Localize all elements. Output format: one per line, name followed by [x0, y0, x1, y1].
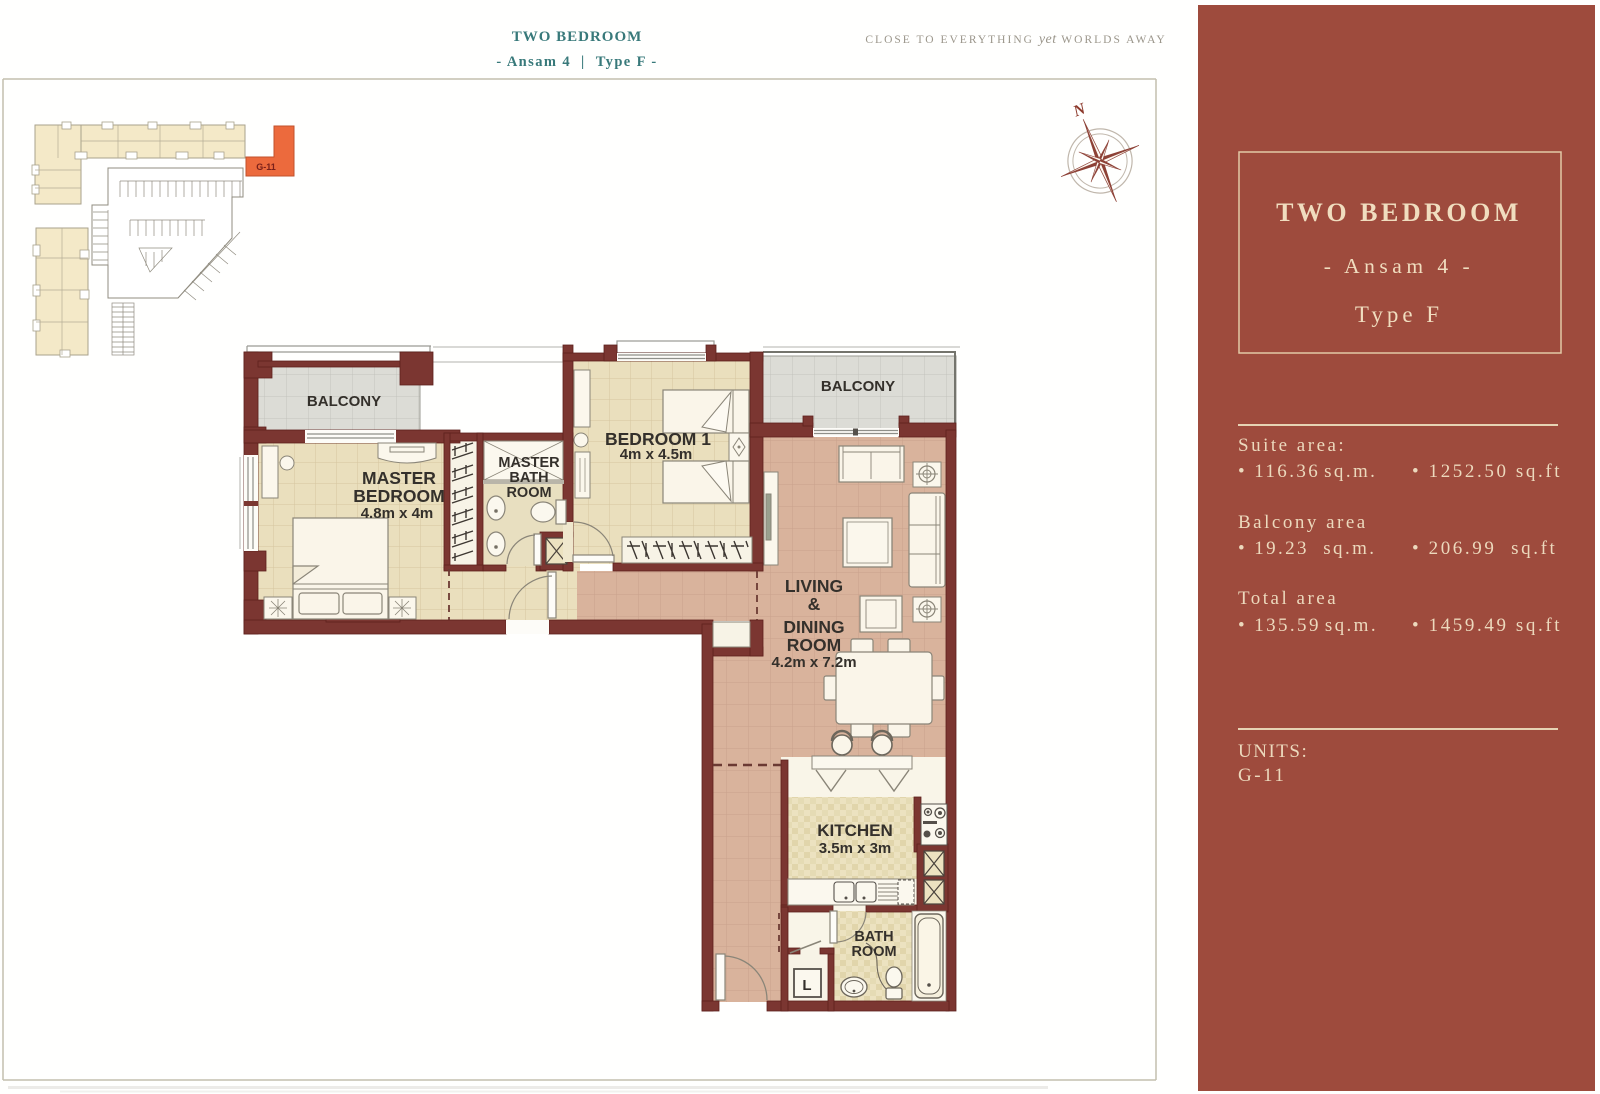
svg-text:• 1252.50 sq.ft: • 1252.50 sq.ft — [1412, 461, 1562, 482]
svg-text:Suite area:: Suite area: — [1238, 435, 1346, 456]
svg-text:- Ansam 4 -: - Ansam 4 - — [1324, 254, 1474, 278]
svg-text:3.5m x 3m: 3.5m x 3m — [819, 840, 892, 857]
svg-text:4m x 4.5m: 4m x 4.5m — [620, 446, 693, 463]
svg-text:L: L — [802, 977, 811, 994]
svg-text:G-11: G-11 — [256, 162, 276, 172]
svg-text:BEDROOM: BEDROOM — [353, 486, 444, 506]
svg-text:LIVING: LIVING — [785, 576, 843, 596]
svg-text:TWO BEDROOM: TWO BEDROOM — [512, 29, 643, 45]
svg-text:4.8m x 4m: 4.8m x 4m — [361, 505, 434, 522]
svg-text:Type F: Type F — [1355, 302, 1443, 327]
svg-text:MASTER: MASTER — [362, 468, 436, 488]
svg-text:ROOM: ROOM — [851, 944, 896, 960]
svg-text:&: & — [808, 594, 821, 614]
svg-text:• 19.23 sq.m.: • 19.23 sq.m. — [1238, 538, 1376, 559]
svg-text:KITCHEN: KITCHEN — [817, 821, 893, 840]
svg-text:Total area: Total area — [1238, 588, 1338, 609]
svg-text:ROOM: ROOM — [787, 635, 841, 655]
svg-text:- Ansam 4 | Type F -: - Ansam 4 | Type F - — [496, 54, 657, 70]
svg-text:UNITS:: UNITS: — [1238, 741, 1308, 762]
svg-text:• 116.36 sq.m.: • 116.36 sq.m. — [1238, 461, 1377, 482]
svg-text:TWO BEDROOM: TWO BEDROOM — [1276, 198, 1522, 227]
svg-text:CLOSE TO EVERYTHING yet WORLDS: CLOSE TO EVERYTHING yet WORLDS AWAY — [865, 32, 1166, 47]
svg-text:DINING: DINING — [783, 617, 844, 637]
svg-text:BATH: BATH — [509, 470, 548, 486]
svg-text:BATH: BATH — [854, 929, 893, 945]
svg-text:4.2m x 7.2m: 4.2m x 7.2m — [771, 654, 856, 671]
svg-text:• 135.59 sq.m.: • 135.59 sq.m. — [1238, 615, 1378, 636]
svg-text:MASTER: MASTER — [498, 455, 560, 471]
svg-text:ROOM: ROOM — [506, 485, 551, 501]
svg-text:BALCONY: BALCONY — [821, 378, 895, 395]
svg-text:G-11: G-11 — [1238, 765, 1286, 786]
svg-text:• 206.99 sq.ft: • 206.99 sq.ft — [1412, 538, 1557, 559]
svg-text:BALCONY: BALCONY — [307, 393, 381, 410]
svg-text:• 1459.49 sq.ft: • 1459.49 sq.ft — [1412, 615, 1562, 636]
svg-text:Balcony area: Balcony area — [1238, 512, 1368, 533]
